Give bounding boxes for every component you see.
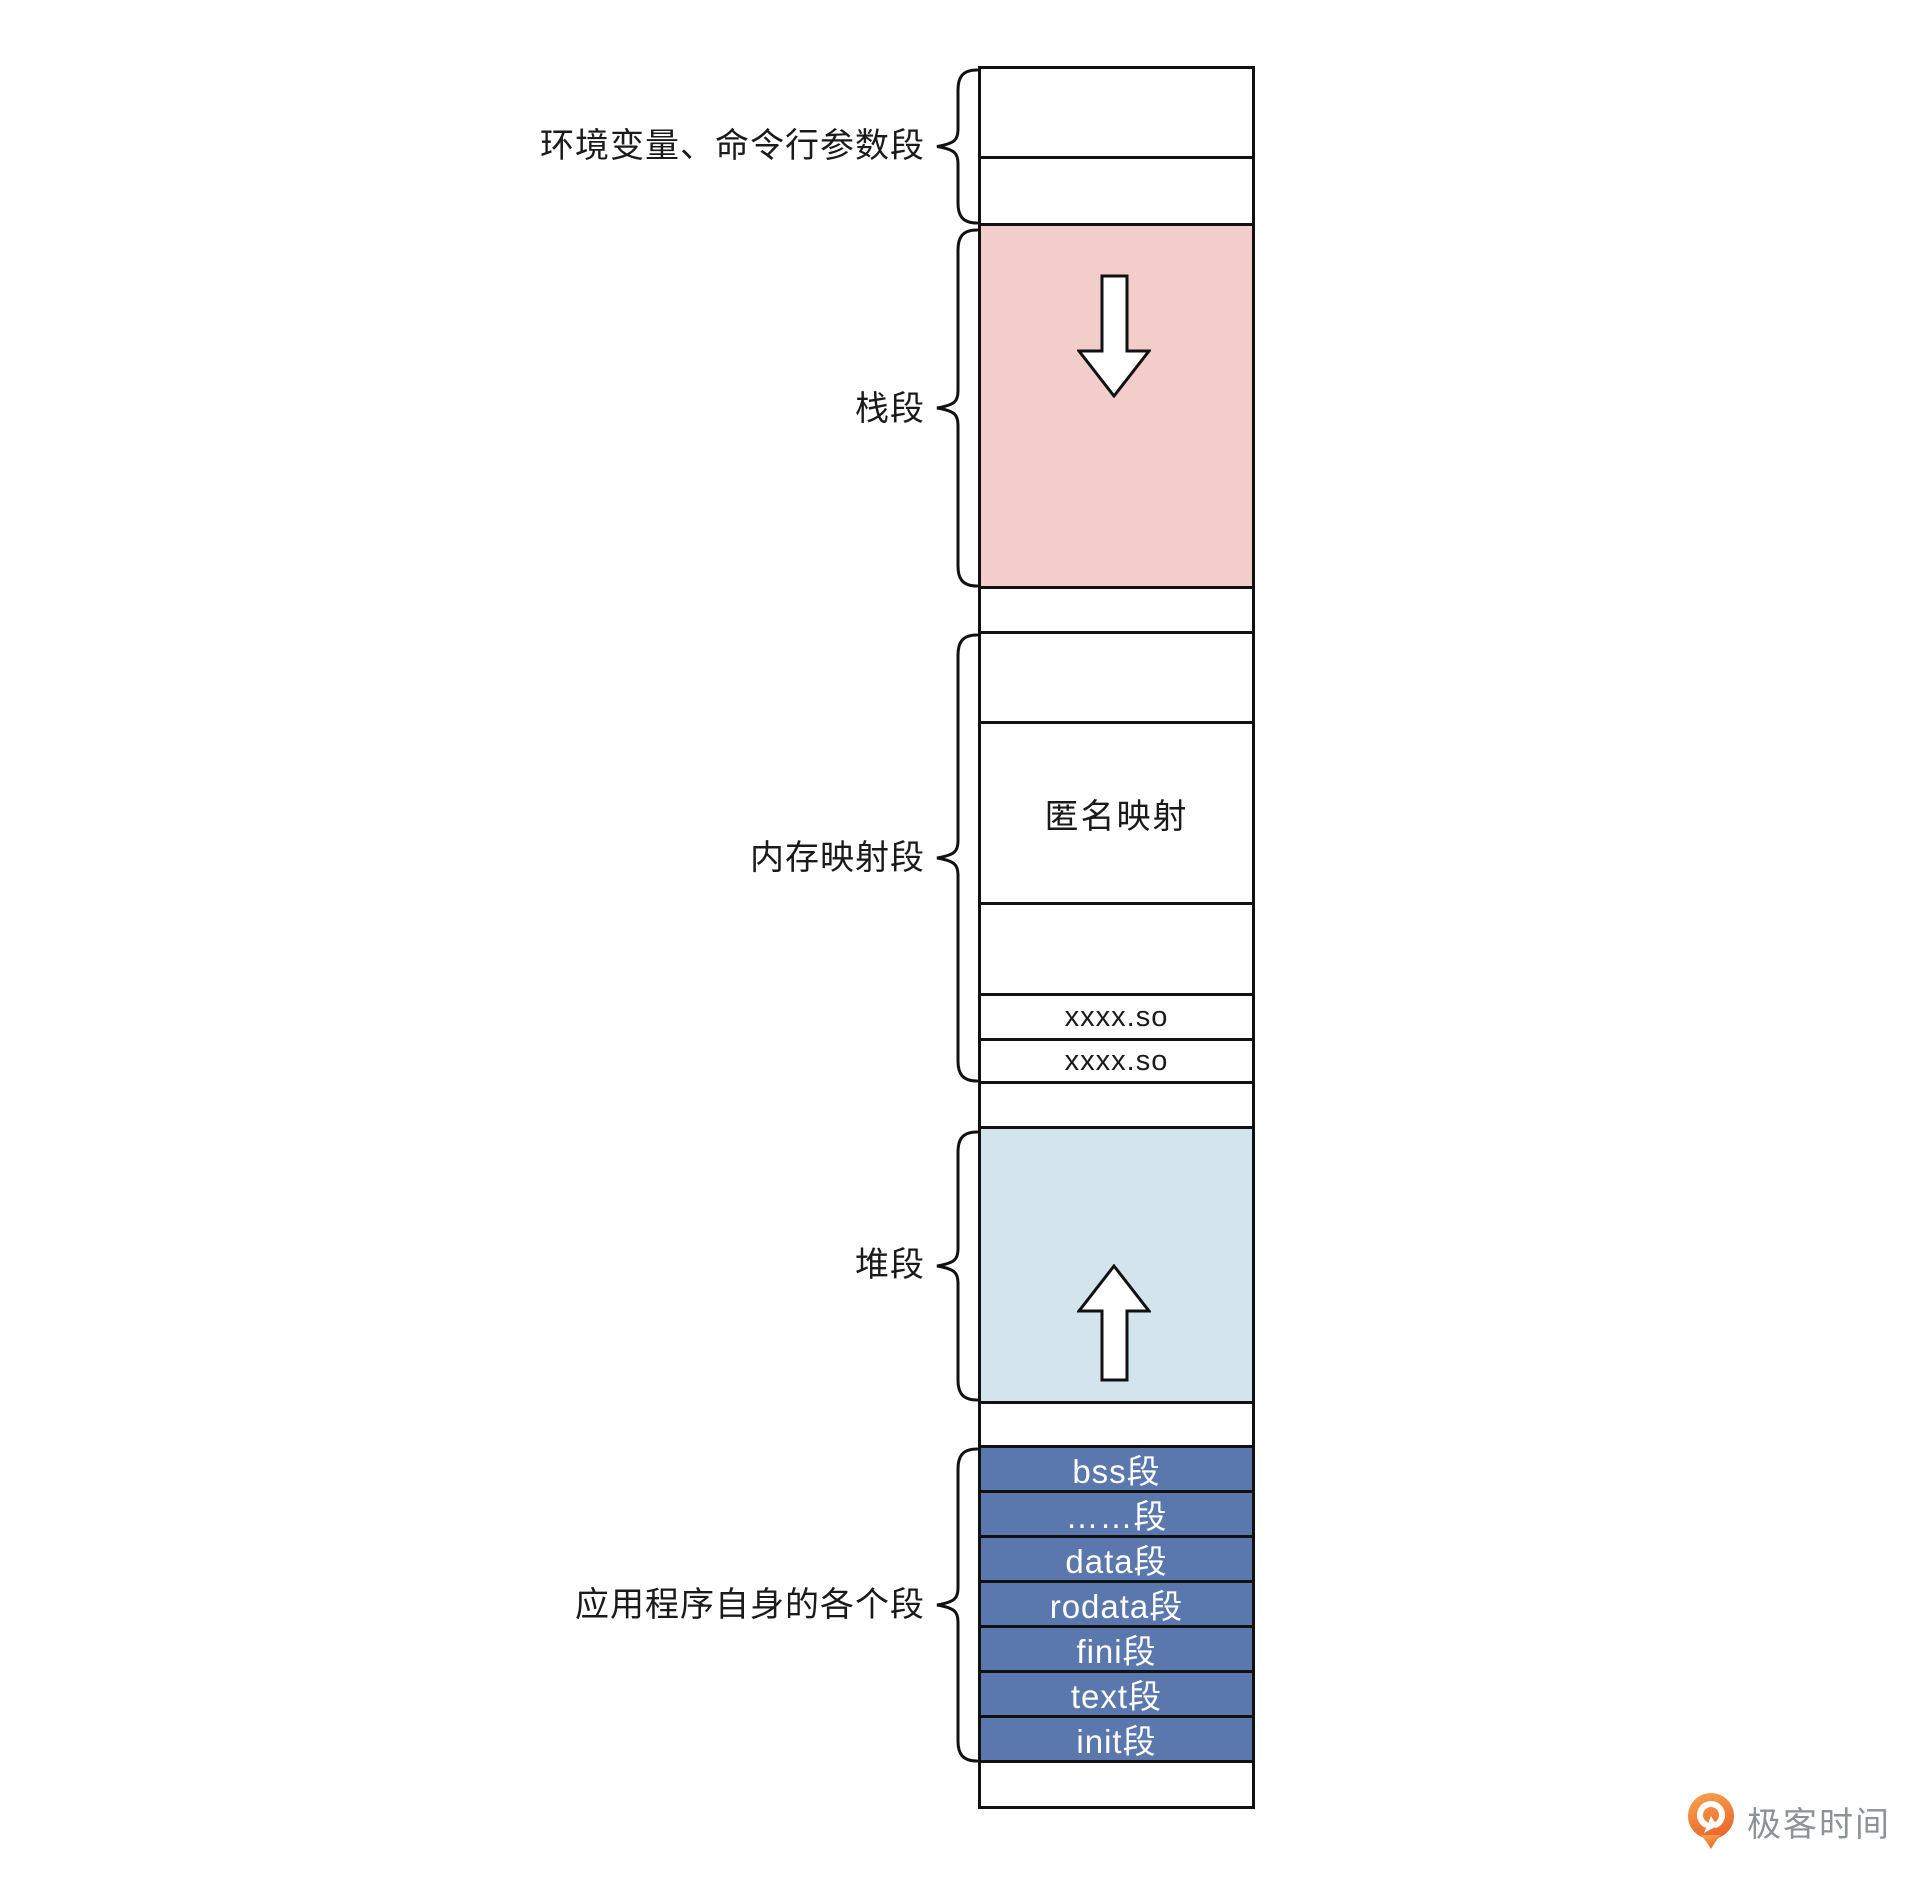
cell-gap-1: [981, 586, 1252, 631]
label-mmap: 内存映射段: [750, 834, 925, 882]
cell-seg-data: data段: [981, 1535, 1252, 1580]
cell-seg-bss: bss段: [981, 1445, 1252, 1490]
cell-seg-init: init段: [981, 1715, 1252, 1760]
cell-seg-fini: fini段: [981, 1625, 1252, 1670]
cell-anonymous-mapping: 匿名映射: [981, 721, 1252, 902]
label-stack: 栈段: [855, 385, 925, 433]
cell-seg-rodata: rodata段: [981, 1580, 1252, 1625]
brace-env-args: [934, 68, 980, 225]
geektime-icon: [1685, 1792, 1737, 1850]
brace-stack: [934, 228, 980, 588]
cell-mmap-1: [981, 631, 1252, 721]
cell-gap-2: [981, 1081, 1252, 1126]
memory-layout-diagram: 环境变量、命令行参数段 栈段 内存映射段 堆段 应用程序自身的各个段 匿名映射 …: [0, 0, 1920, 1881]
cell-seg-dots: ……段: [981, 1490, 1252, 1535]
brace-heap: [934, 1130, 980, 1402]
cell-bottom: [981, 1760, 1252, 1805]
brand-text: 极客时间: [1747, 1797, 1891, 1846]
up-arrow-icon: [1077, 1264, 1151, 1382]
cell-mmap-2: [981, 902, 1252, 993]
label-env-args: 环境变量、命令行参数段: [540, 122, 925, 170]
label-app: 应用程序自身的各个段: [575, 1581, 925, 1629]
brace-mmap: [934, 633, 980, 1083]
brace-app: [934, 1447, 980, 1763]
cell-seg-text: text段: [981, 1670, 1252, 1715]
down-arrow-icon: [1077, 274, 1151, 398]
cell-so-top: xxxx.so: [981, 993, 1252, 1038]
cell-gap-3: [981, 1401, 1252, 1445]
brand-logo: 极客时间: [1685, 1792, 1891, 1850]
cell-env-2: [981, 156, 1252, 223]
cell-so-bottom: xxxx.so: [981, 1038, 1252, 1081]
label-heap: 堆段: [855, 1241, 925, 1289]
cell-env-1: [981, 69, 1252, 156]
